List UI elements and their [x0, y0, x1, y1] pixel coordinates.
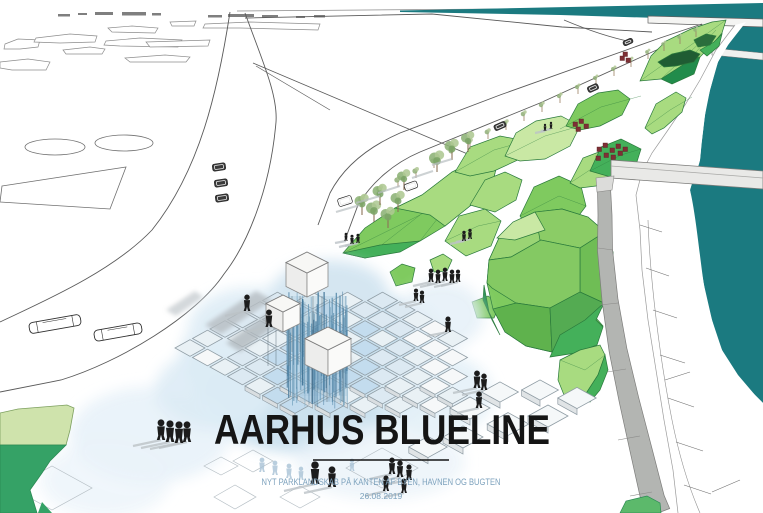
svg-text:26.08.2019: 26.08.2019	[360, 491, 403, 501]
svg-text:NYT PARKLANDSKAB PÅ KANTEN AF: NYT PARKLANDSKAB PÅ KANTEN AF BYEN, HAVN…	[262, 477, 501, 488]
svg-text:AARHUS BLUELINE: AARHUS BLUELINE	[214, 406, 550, 453]
